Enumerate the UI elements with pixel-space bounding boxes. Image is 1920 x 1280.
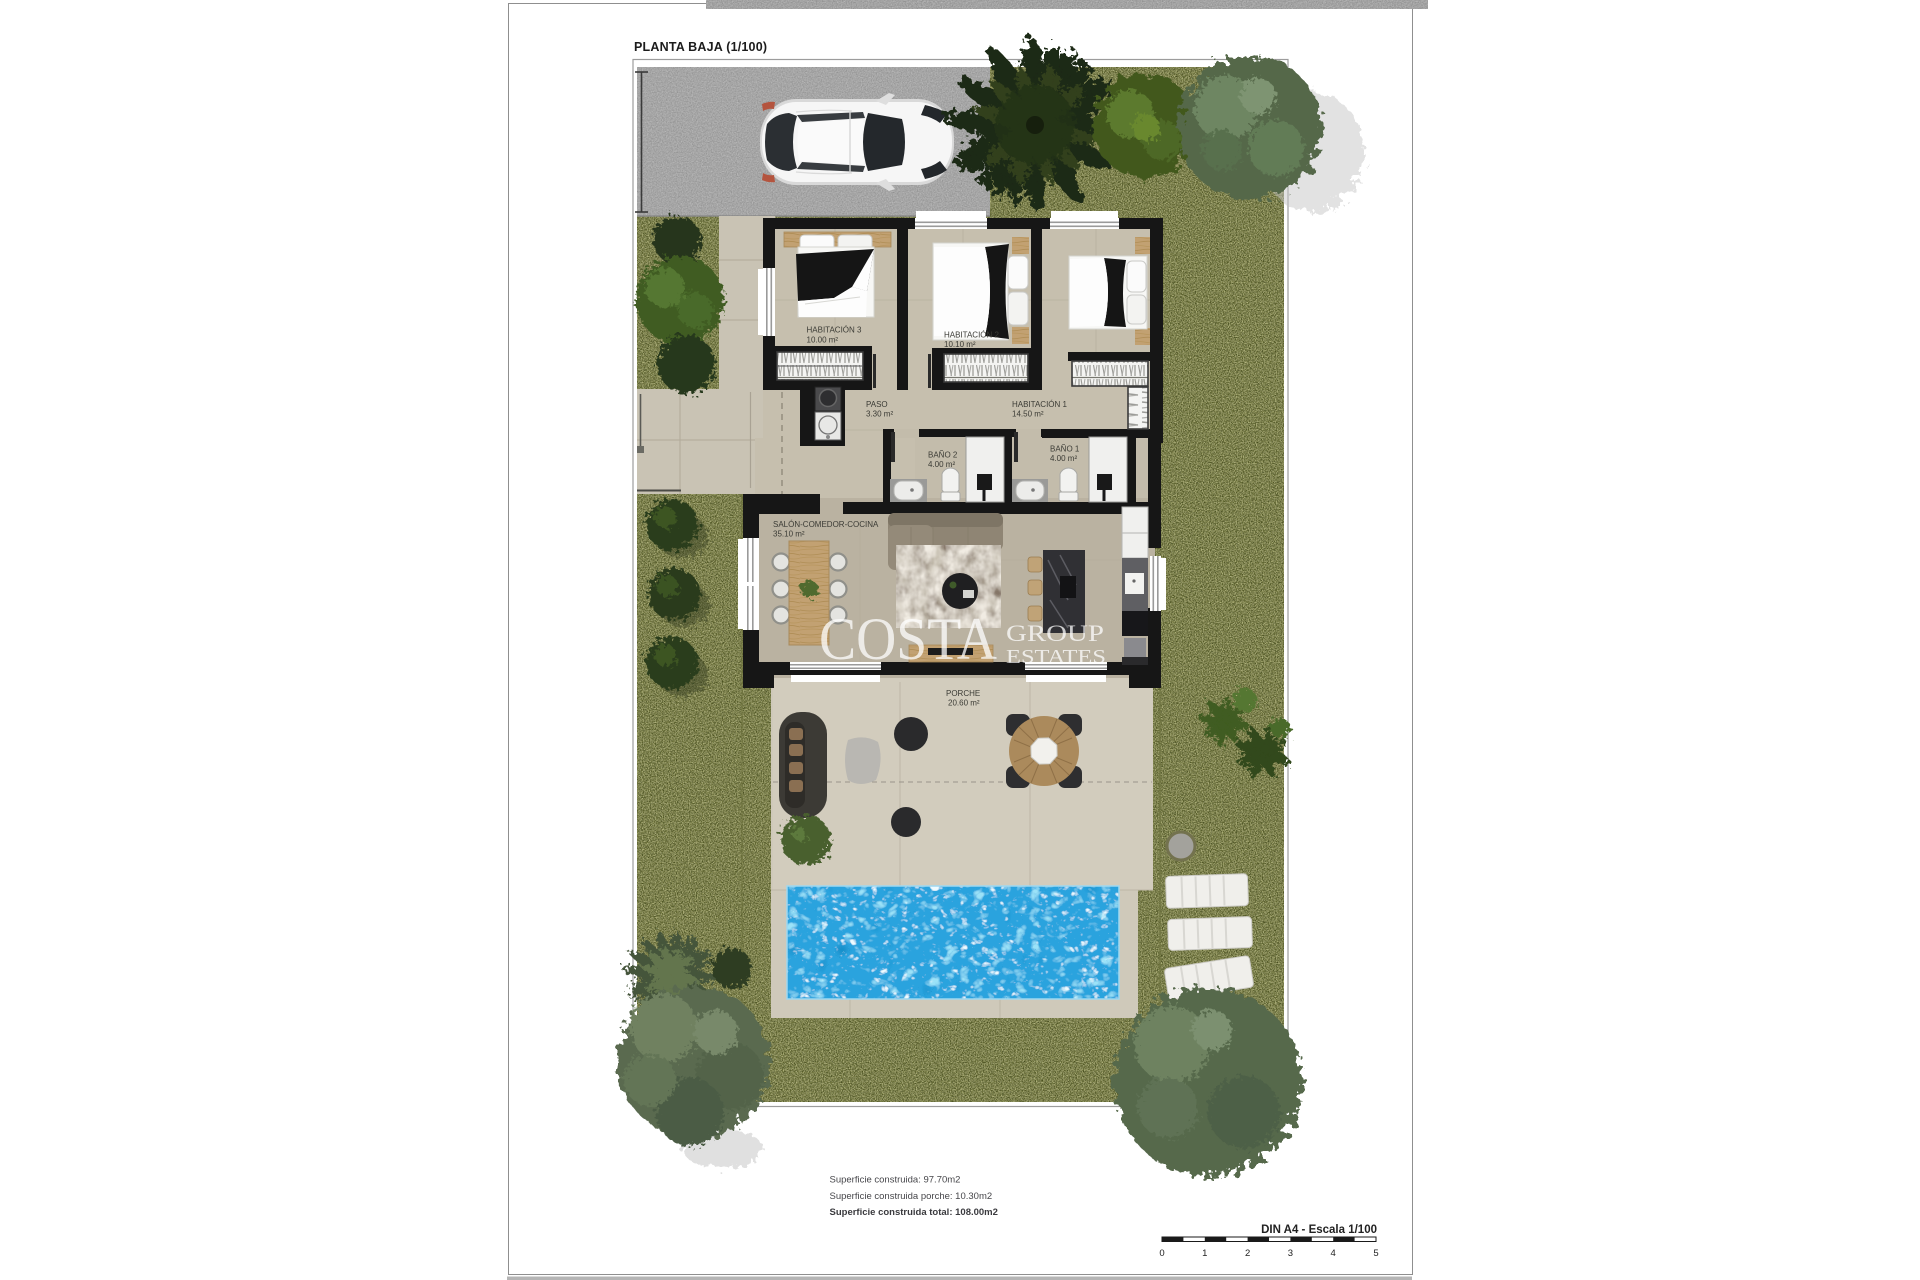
svg-text:HABITACIÓN 1: HABITACIÓN 1	[1012, 400, 1068, 409]
svg-text:HABITACIÓN 2: HABITACIÓN 2	[944, 331, 1000, 340]
svg-text:3: 3	[1288, 1248, 1293, 1259]
svg-text:4: 4	[1331, 1248, 1336, 1259]
svg-text:BAÑO 2: BAÑO 2	[928, 451, 958, 460]
svg-text:PLANTA BAJA (1/100): PLANTA BAJA (1/100)	[634, 40, 767, 54]
svg-text:4.00 m²: 4.00 m²	[928, 460, 955, 469]
svg-text:10.10 m²: 10.10 m²	[944, 340, 976, 349]
svg-text:Superficie construida: 97.70m2: Superficie construida: 97.70m2	[830, 1175, 961, 1186]
svg-text:DIN A4 - Escala 1/100: DIN A4 - Escala 1/100	[1261, 1224, 1377, 1236]
svg-text:COSTA: COSTA	[819, 606, 997, 672]
svg-text:BAÑO 1: BAÑO 1	[1050, 445, 1080, 454]
svg-text:35.10 m²: 35.10 m²	[773, 530, 805, 539]
svg-text:PASO: PASO	[866, 400, 888, 409]
svg-text:ESTATES: ESTATES	[1006, 646, 1106, 668]
svg-text:1: 1	[1202, 1248, 1207, 1259]
svg-text:20.60 m²: 20.60 m²	[948, 699, 980, 708]
svg-text:SALÓN-COMEDOR-COCINA: SALÓN-COMEDOR-COCINA	[773, 520, 879, 529]
svg-text:Superficie construida porche:: Superficie construida porche: 10.30m2	[830, 1191, 993, 1202]
svg-text:2: 2	[1245, 1248, 1250, 1259]
svg-text:5: 5	[1373, 1248, 1378, 1259]
svg-text:10.00 m²: 10.00 m²	[807, 336, 839, 345]
svg-text:PORCHE: PORCHE	[946, 689, 980, 698]
svg-text:HABITACIÓN 3: HABITACIÓN 3	[807, 326, 863, 335]
svg-text:GROUP: GROUP	[1006, 621, 1104, 646]
svg-text:Superficie construida total: 1: Superficie construida total: 108.00m2	[830, 1207, 998, 1218]
svg-text:3.30 m²: 3.30 m²	[866, 410, 893, 419]
svg-text:14.50 m²: 14.50 m²	[1012, 410, 1044, 419]
svg-text:0: 0	[1159, 1248, 1164, 1259]
svg-text:4.00 m²: 4.00 m²	[1050, 454, 1077, 463]
